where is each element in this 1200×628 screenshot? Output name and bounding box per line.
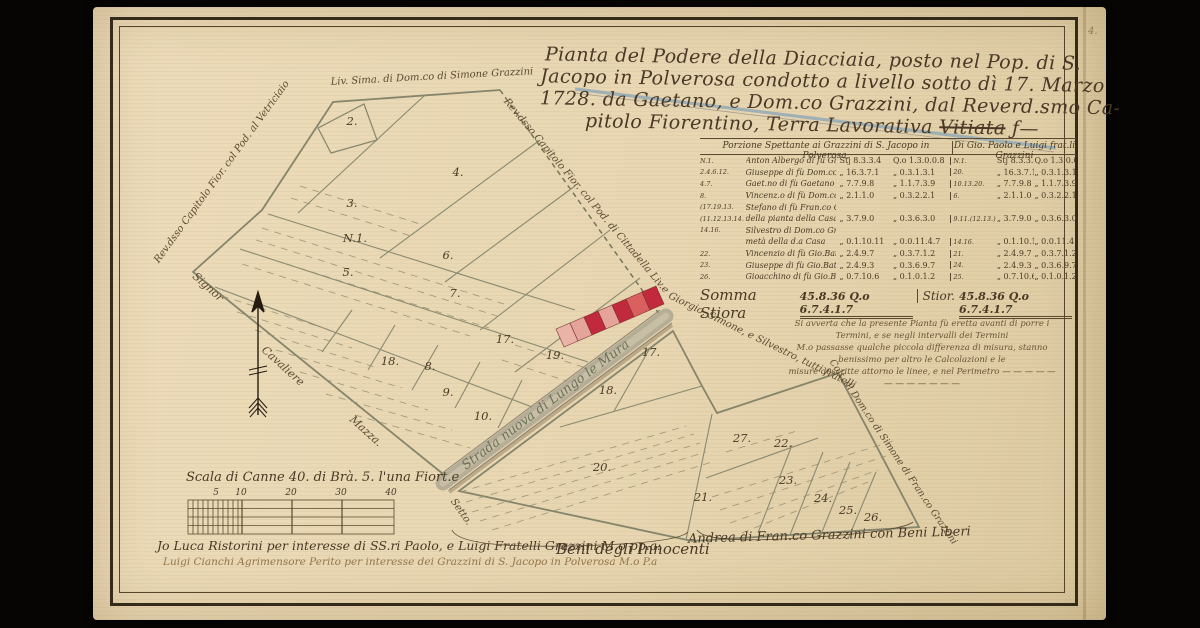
scale-tick-label: 40 [385, 488, 396, 498]
scale-ticks: 510203040 [0, 0, 1200, 628]
scale-tick-label: 30 [335, 488, 346, 498]
page-number: 4. [1088, 26, 1098, 37]
antique-cadastral-map: Strada nuova di Lungo le Mura [0, 0, 1200, 628]
surveyor-signature-2: Luigi Cianchi Agrimensore Perito per int… [163, 556, 657, 568]
scale-tick-label: 20 [285, 488, 296, 498]
scale-tick-label: 5 [213, 488, 219, 498]
scale-tick-label: 10 [235, 488, 246, 498]
